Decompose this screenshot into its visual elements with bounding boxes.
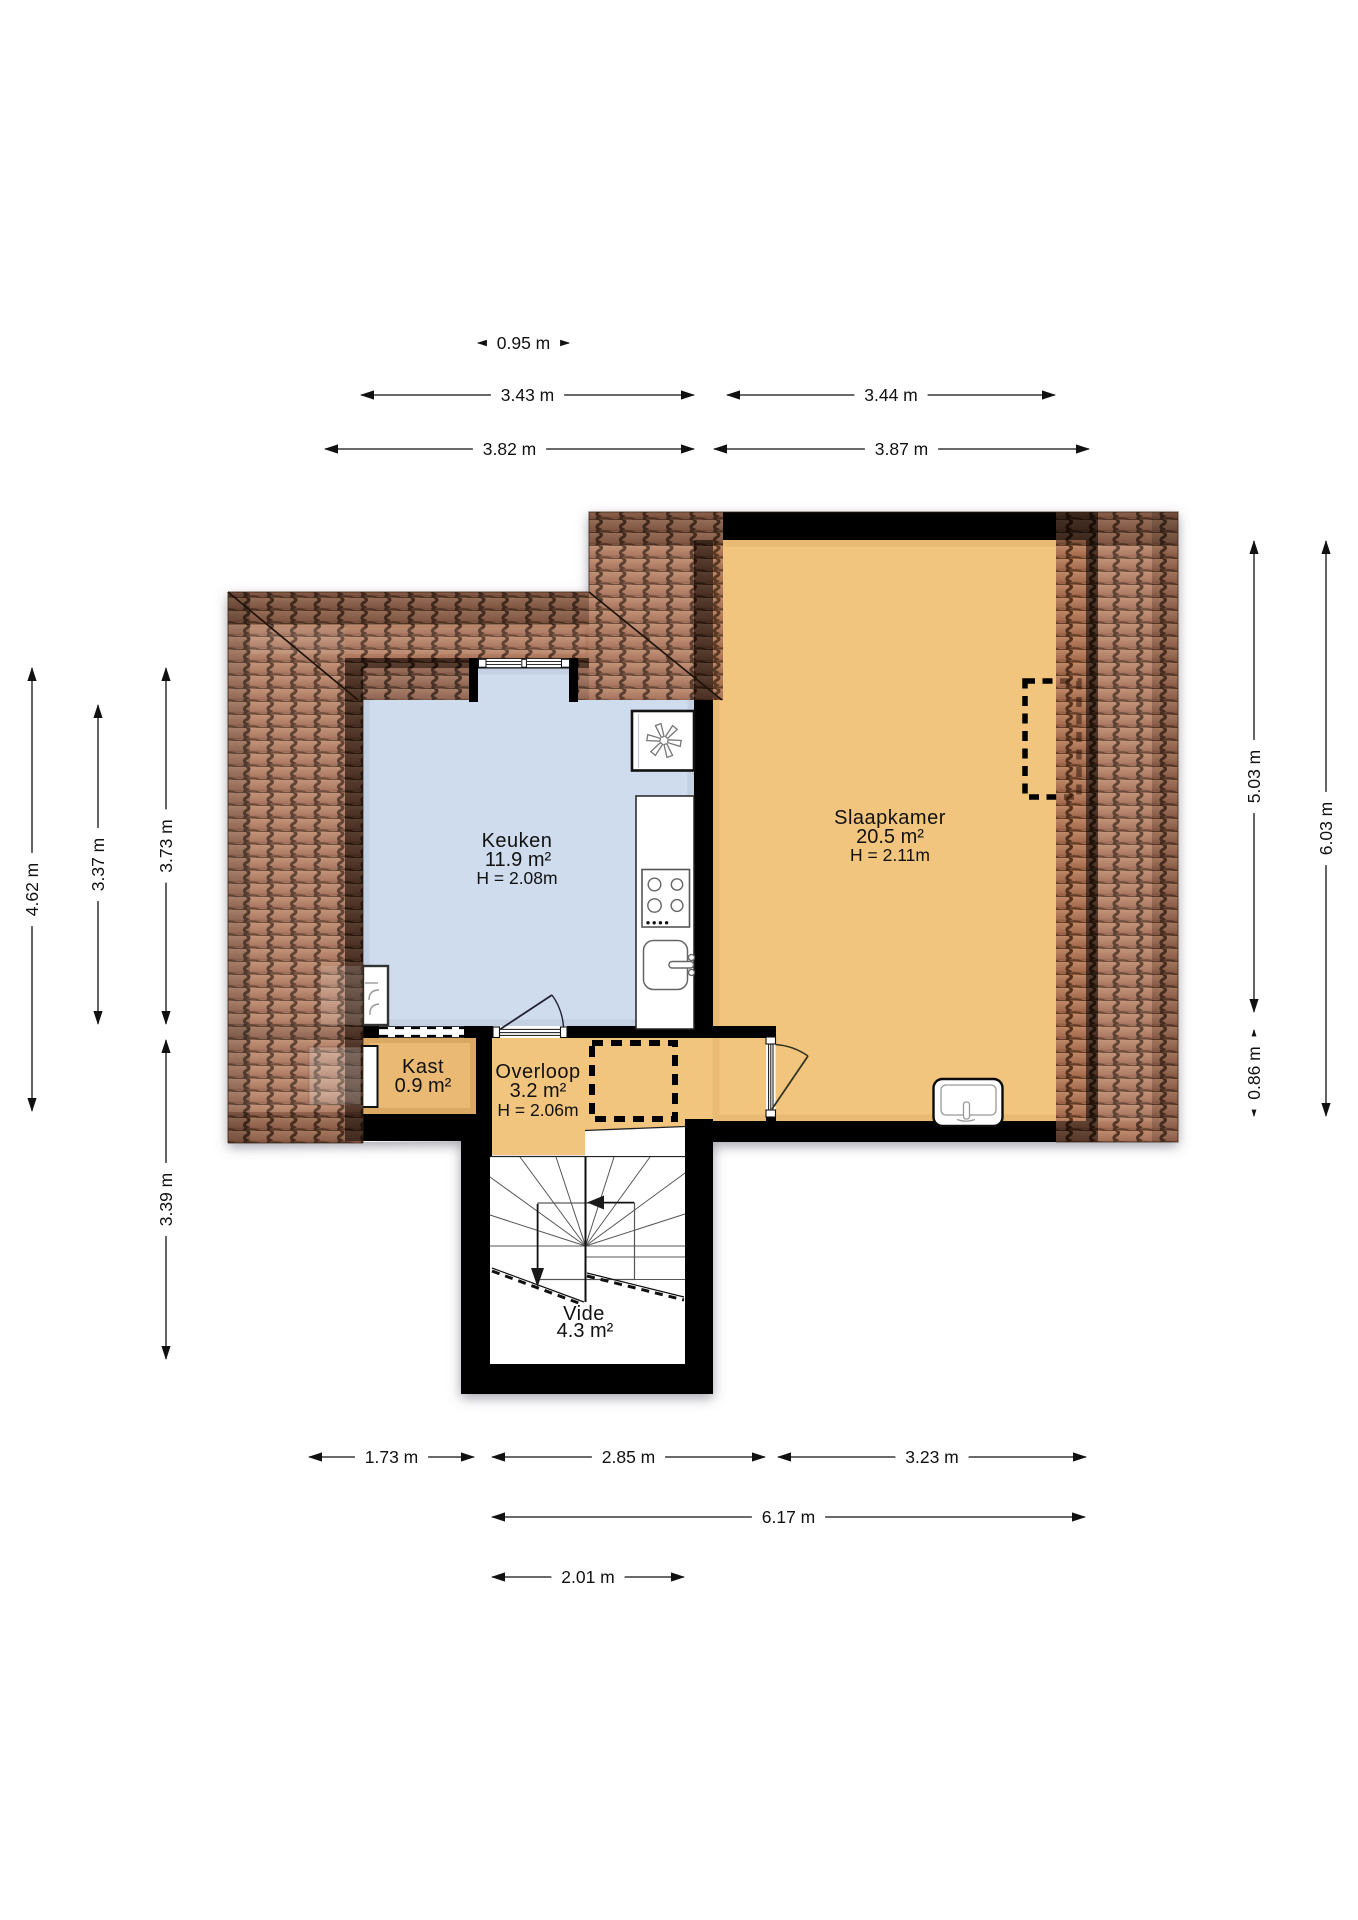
svg-text:3.87 m: 3.87 m	[875, 439, 929, 459]
svg-text:0.9 m²: 0.9 m²	[395, 1075, 452, 1097]
svg-text:4.62 m: 4.62 m	[22, 863, 42, 917]
svg-text:H = 2.08m: H = 2.08m	[476, 868, 557, 888]
svg-text:0.95 m: 0.95 m	[497, 333, 551, 353]
svg-text:H = 2.06m: H = 2.06m	[497, 1100, 578, 1120]
svg-text:4.3 m²: 4.3 m²	[557, 1320, 614, 1342]
svg-text:2.01 m: 2.01 m	[561, 1567, 615, 1587]
svg-text:3.39 m: 3.39 m	[156, 1173, 176, 1227]
svg-text:6.03 m: 6.03 m	[1316, 802, 1336, 856]
svg-text:H = 2.11m: H = 2.11m	[850, 845, 930, 865]
svg-text:3.82 m: 3.82 m	[483, 439, 537, 459]
svg-text:2.85 m: 2.85 m	[602, 1447, 656, 1467]
svg-text:3.2 m²: 3.2 m²	[510, 1080, 567, 1102]
svg-text:5.03 m: 5.03 m	[1244, 750, 1264, 804]
svg-text:6.17 m: 6.17 m	[762, 1507, 816, 1527]
svg-text:3.73 m: 3.73 m	[156, 819, 176, 873]
svg-text:3.43 m: 3.43 m	[501, 385, 555, 405]
svg-text:3.23 m: 3.23 m	[905, 1447, 959, 1467]
svg-text:3.44 m: 3.44 m	[864, 385, 918, 405]
svg-text:3.37 m: 3.37 m	[88, 838, 108, 892]
svg-text:0.86 m: 0.86 m	[1244, 1046, 1264, 1100]
svg-text:1.73 m: 1.73 m	[365, 1447, 419, 1467]
